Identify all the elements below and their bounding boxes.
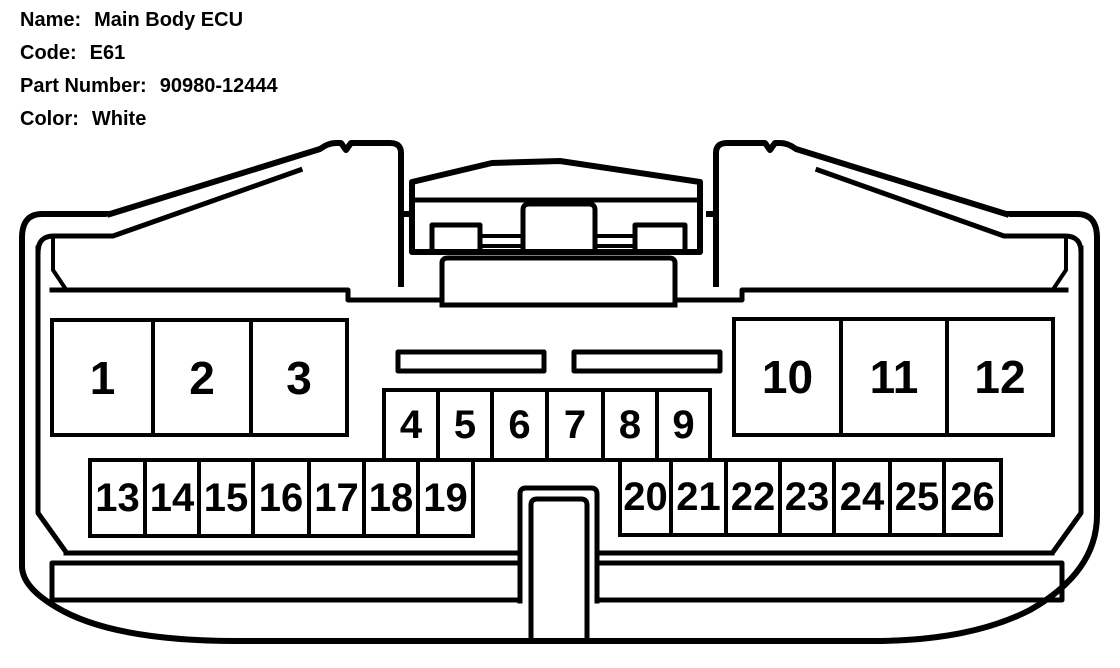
code-label: Code: — [20, 42, 77, 65]
connector-diagram-page: Name: Main Body ECU Code: E61 Part Numbe… — [0, 0, 1120, 668]
pin-cavity-19: 19 — [416, 458, 475, 538]
pin-cavity-22: 22 — [724, 458, 782, 537]
name-label: Name: — [20, 9, 81, 32]
connector-info-block: Name: Main Body ECU Code: E61 Part Numbe… — [20, 4, 278, 136]
pin-row-20-26: 20212223242526 — [618, 458, 1003, 537]
pin-cavity-10: 10 — [732, 317, 843, 437]
pin-cavity-7: 7 — [545, 388, 605, 462]
pin-cavity-23: 23 — [778, 458, 836, 537]
right-wing-fill — [716, 143, 1010, 282]
pin-cavity-12: 12 — [945, 317, 1055, 437]
code-line: Code: E61 — [20, 37, 278, 70]
pin-row-1-3: 123 — [50, 318, 349, 437]
pin-row-4-9: 456789 — [382, 388, 712, 462]
part-number-label: Part Number: — [20, 75, 147, 98]
pin-cavity-3: 3 — [249, 318, 349, 437]
part-number-line: Part Number: 90980-12444 — [20, 70, 278, 103]
code-value: E61 — [90, 42, 126, 65]
pin-cavity-2: 2 — [151, 318, 253, 437]
pin-cavity-14: 14 — [143, 458, 201, 538]
pin-cavity-5: 5 — [436, 388, 494, 462]
pin-cavity-11: 11 — [839, 317, 949, 437]
pin-cavity-15: 15 — [197, 458, 255, 538]
pin-cavity-25: 25 — [888, 458, 946, 537]
pin-cavity-21: 21 — [669, 458, 728, 537]
name-value: Main Body ECU — [94, 9, 243, 32]
pin-cavity-16: 16 — [251, 458, 311, 538]
pin-cavity-9: 9 — [655, 388, 712, 462]
pin-cavity-26: 26 — [942, 458, 1003, 537]
color-label: Color: — [20, 108, 79, 131]
name-line: Name: Main Body ECU — [20, 4, 278, 37]
color-value: White — [92, 108, 146, 131]
part-number-value: 90980-12444 — [160, 75, 278, 98]
left-wing-fill — [106, 143, 402, 282]
pin-cavity-1: 1 — [50, 318, 155, 437]
pin-cavity-18: 18 — [362, 458, 420, 538]
pin-cavity-20: 20 — [618, 458, 673, 537]
pin-cavity-6: 6 — [490, 388, 549, 462]
pin-cavity-8: 8 — [601, 388, 659, 462]
pin-cavity-17: 17 — [307, 458, 366, 538]
color-line: Color: White — [20, 103, 278, 136]
pin-row-13-19: 13141516171819 — [88, 458, 475, 538]
pin-cavity-4: 4 — [382, 388, 440, 462]
pin-cavity-24: 24 — [832, 458, 892, 537]
pin-row-10-12: 101112 — [732, 317, 1055, 437]
pin-cavity-13: 13 — [88, 458, 147, 538]
